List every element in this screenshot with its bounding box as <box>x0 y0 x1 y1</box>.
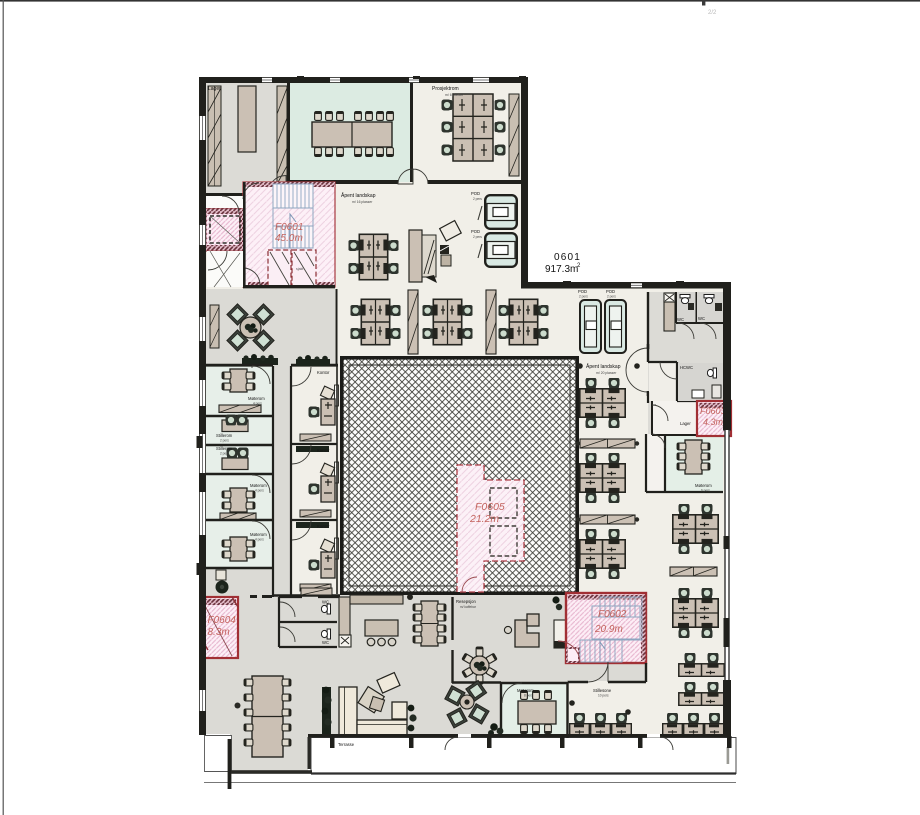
svg-text:Møterom: Møterom <box>250 483 267 488</box>
svg-text:0601: 0601 <box>554 252 581 263</box>
svg-text:Møterom: Møterom <box>695 483 712 488</box>
svg-text:6 pers: 6 pers <box>701 489 710 493</box>
svg-text:POD: POD <box>578 289 587 294</box>
svg-text:Stillerom: Stillerom <box>216 433 233 438</box>
svg-text:Lager: Lager <box>208 86 221 92</box>
svg-text:2 pers: 2 pers <box>607 295 616 299</box>
svg-text:F0601: F0601 <box>275 222 303 233</box>
svg-text:21.2m: 21.2m <box>469 513 499 525</box>
svg-text:Møterom: Møterom <box>250 532 267 537</box>
svg-text:Kontor: Kontor <box>317 524 330 529</box>
svg-text:10 pers: 10 pers <box>598 694 609 698</box>
svg-text:2 pers: 2 pers <box>473 197 482 201</box>
svg-text:2 pers: 2 pers <box>220 439 229 443</box>
svg-text:Møterom: Møterom <box>517 688 534 693</box>
svg-text:2/2: 2/2 <box>708 10 717 16</box>
svg-text:4 pers: 4 pers <box>255 489 264 493</box>
svg-text:8 pers: 8 pers <box>524 694 533 698</box>
svg-text:2 pers: 2 pers <box>473 235 482 239</box>
svg-text:Stillesone: Stillesone <box>593 688 612 693</box>
svg-text:45.0m: 45.0m <box>275 233 303 244</box>
svg-text:4.3m: 4.3m <box>703 417 724 427</box>
svg-text:F0605: F0605 <box>475 501 505 513</box>
svg-text:Åpent landskap: Åpent landskap <box>341 192 376 199</box>
svg-text:8.3m: 8.3m <box>208 627 230 638</box>
svg-text:WC: WC <box>698 316 705 321</box>
svg-text:m/ 6 plasser: m/ 6 plasser <box>445 93 464 97</box>
svg-text:POD: POD <box>471 229 480 234</box>
svg-text:F0603: F0603 <box>700 406 726 416</box>
svg-text:Kontor: Kontor <box>317 448 330 453</box>
svg-text:Lager: Lager <box>680 421 691 426</box>
svg-text:Møterom: Møterom <box>248 396 265 401</box>
svg-text:2 pers: 2 pers <box>220 452 229 456</box>
svg-text:2 pers: 2 pers <box>579 295 588 299</box>
svg-text:POD: POD <box>471 191 480 196</box>
svg-text:Stillerom: Stillerom <box>216 446 233 451</box>
svg-text:m/ 20 plasser: m/ 20 plasser <box>596 371 617 375</box>
svg-text:4 pers: 4 pers <box>255 538 264 542</box>
svg-text:WC: WC <box>322 600 329 605</box>
svg-text:Kontor: Kontor <box>317 370 330 375</box>
svg-text:Terrasse: Terrasse <box>338 742 355 747</box>
svg-text:Åpent landskap: Åpent landskap <box>586 363 621 370</box>
svg-text:m/ kaffebar: m/ kaffebar <box>460 605 477 609</box>
svg-text:sjakt: sjakt <box>296 267 303 271</box>
svg-text:POD: POD <box>606 289 615 294</box>
svg-text:WC: WC <box>322 640 329 645</box>
svg-text:HCWC: HCWC <box>680 365 693 370</box>
svg-text:F0602: F0602 <box>598 609 627 620</box>
svg-text:Prosjektrom: Prosjektrom <box>432 86 459 92</box>
svg-text:4 pers: 4 pers <box>253 402 262 406</box>
svg-text:WC: WC <box>677 317 684 322</box>
svg-text:F0604: F0604 <box>208 615 237 626</box>
svg-text:20.9m: 20.9m <box>594 624 623 635</box>
svg-text:m/ 16 plasser: m/ 16 plasser <box>352 200 373 204</box>
svg-text:Resepsjon: Resepsjon <box>456 599 476 604</box>
svg-text:917.3m: 917.3m <box>545 264 578 275</box>
